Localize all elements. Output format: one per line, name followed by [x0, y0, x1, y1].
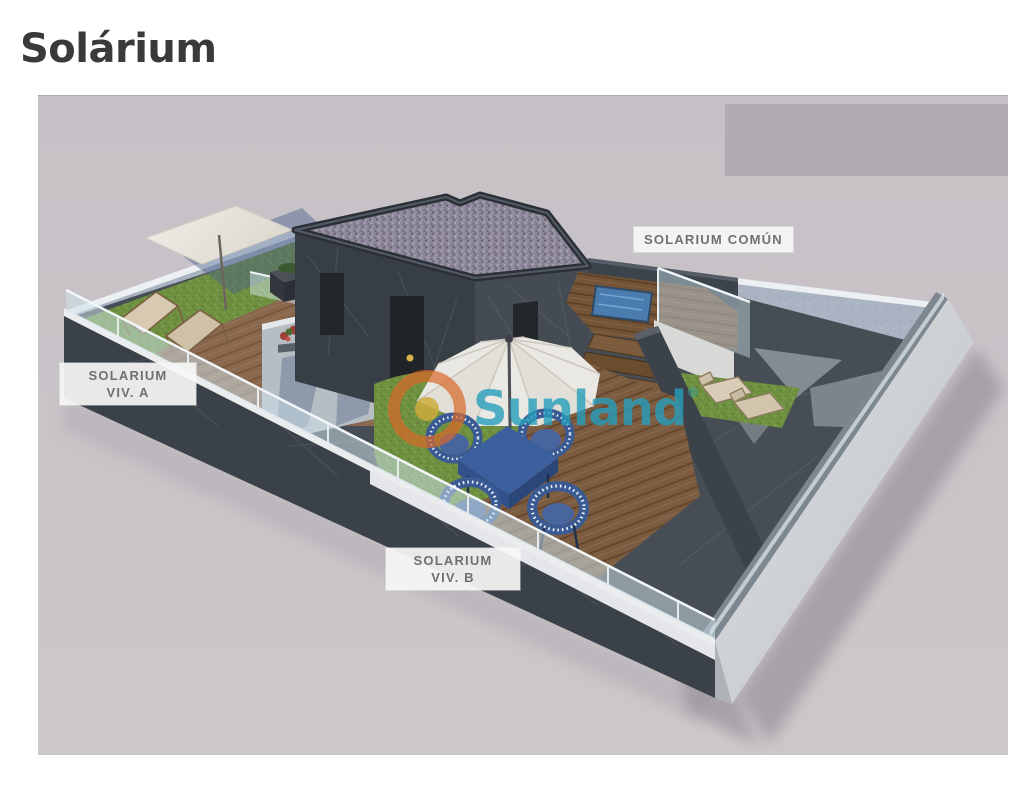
label-viv-b-line1: SOLARIUM — [396, 552, 510, 569]
door — [390, 296, 424, 378]
masked-region — [725, 104, 1008, 176]
label-solarium-comun-text: SOLARIUM COMÚN — [644, 232, 783, 247]
wall-light — [407, 355, 414, 362]
label-viv-a-line2: VIV. A — [70, 384, 186, 401]
label-viv-b-line2: VIV. B — [396, 569, 510, 586]
page: { "page": { "title": "Solárium" }, "figu… — [0, 0, 1024, 800]
label-viv-a-line1: SOLARIUM — [70, 367, 186, 384]
page-title: Solárium — [20, 26, 217, 72]
label-solarium-viv-a: SOLARIUM VIV. A — [60, 363, 196, 405]
door — [320, 273, 344, 335]
label-solarium-viv-b: SOLARIUM VIV. B — [386, 548, 520, 590]
label-solarium-comun: SOLARIUM COMÚN — [634, 227, 793, 252]
render-image: SOLARIUM COMÚN SOLARIUM VIV. A SOLARIUM … — [38, 95, 1008, 755]
solarium-3d-scene — [38, 96, 1008, 755]
